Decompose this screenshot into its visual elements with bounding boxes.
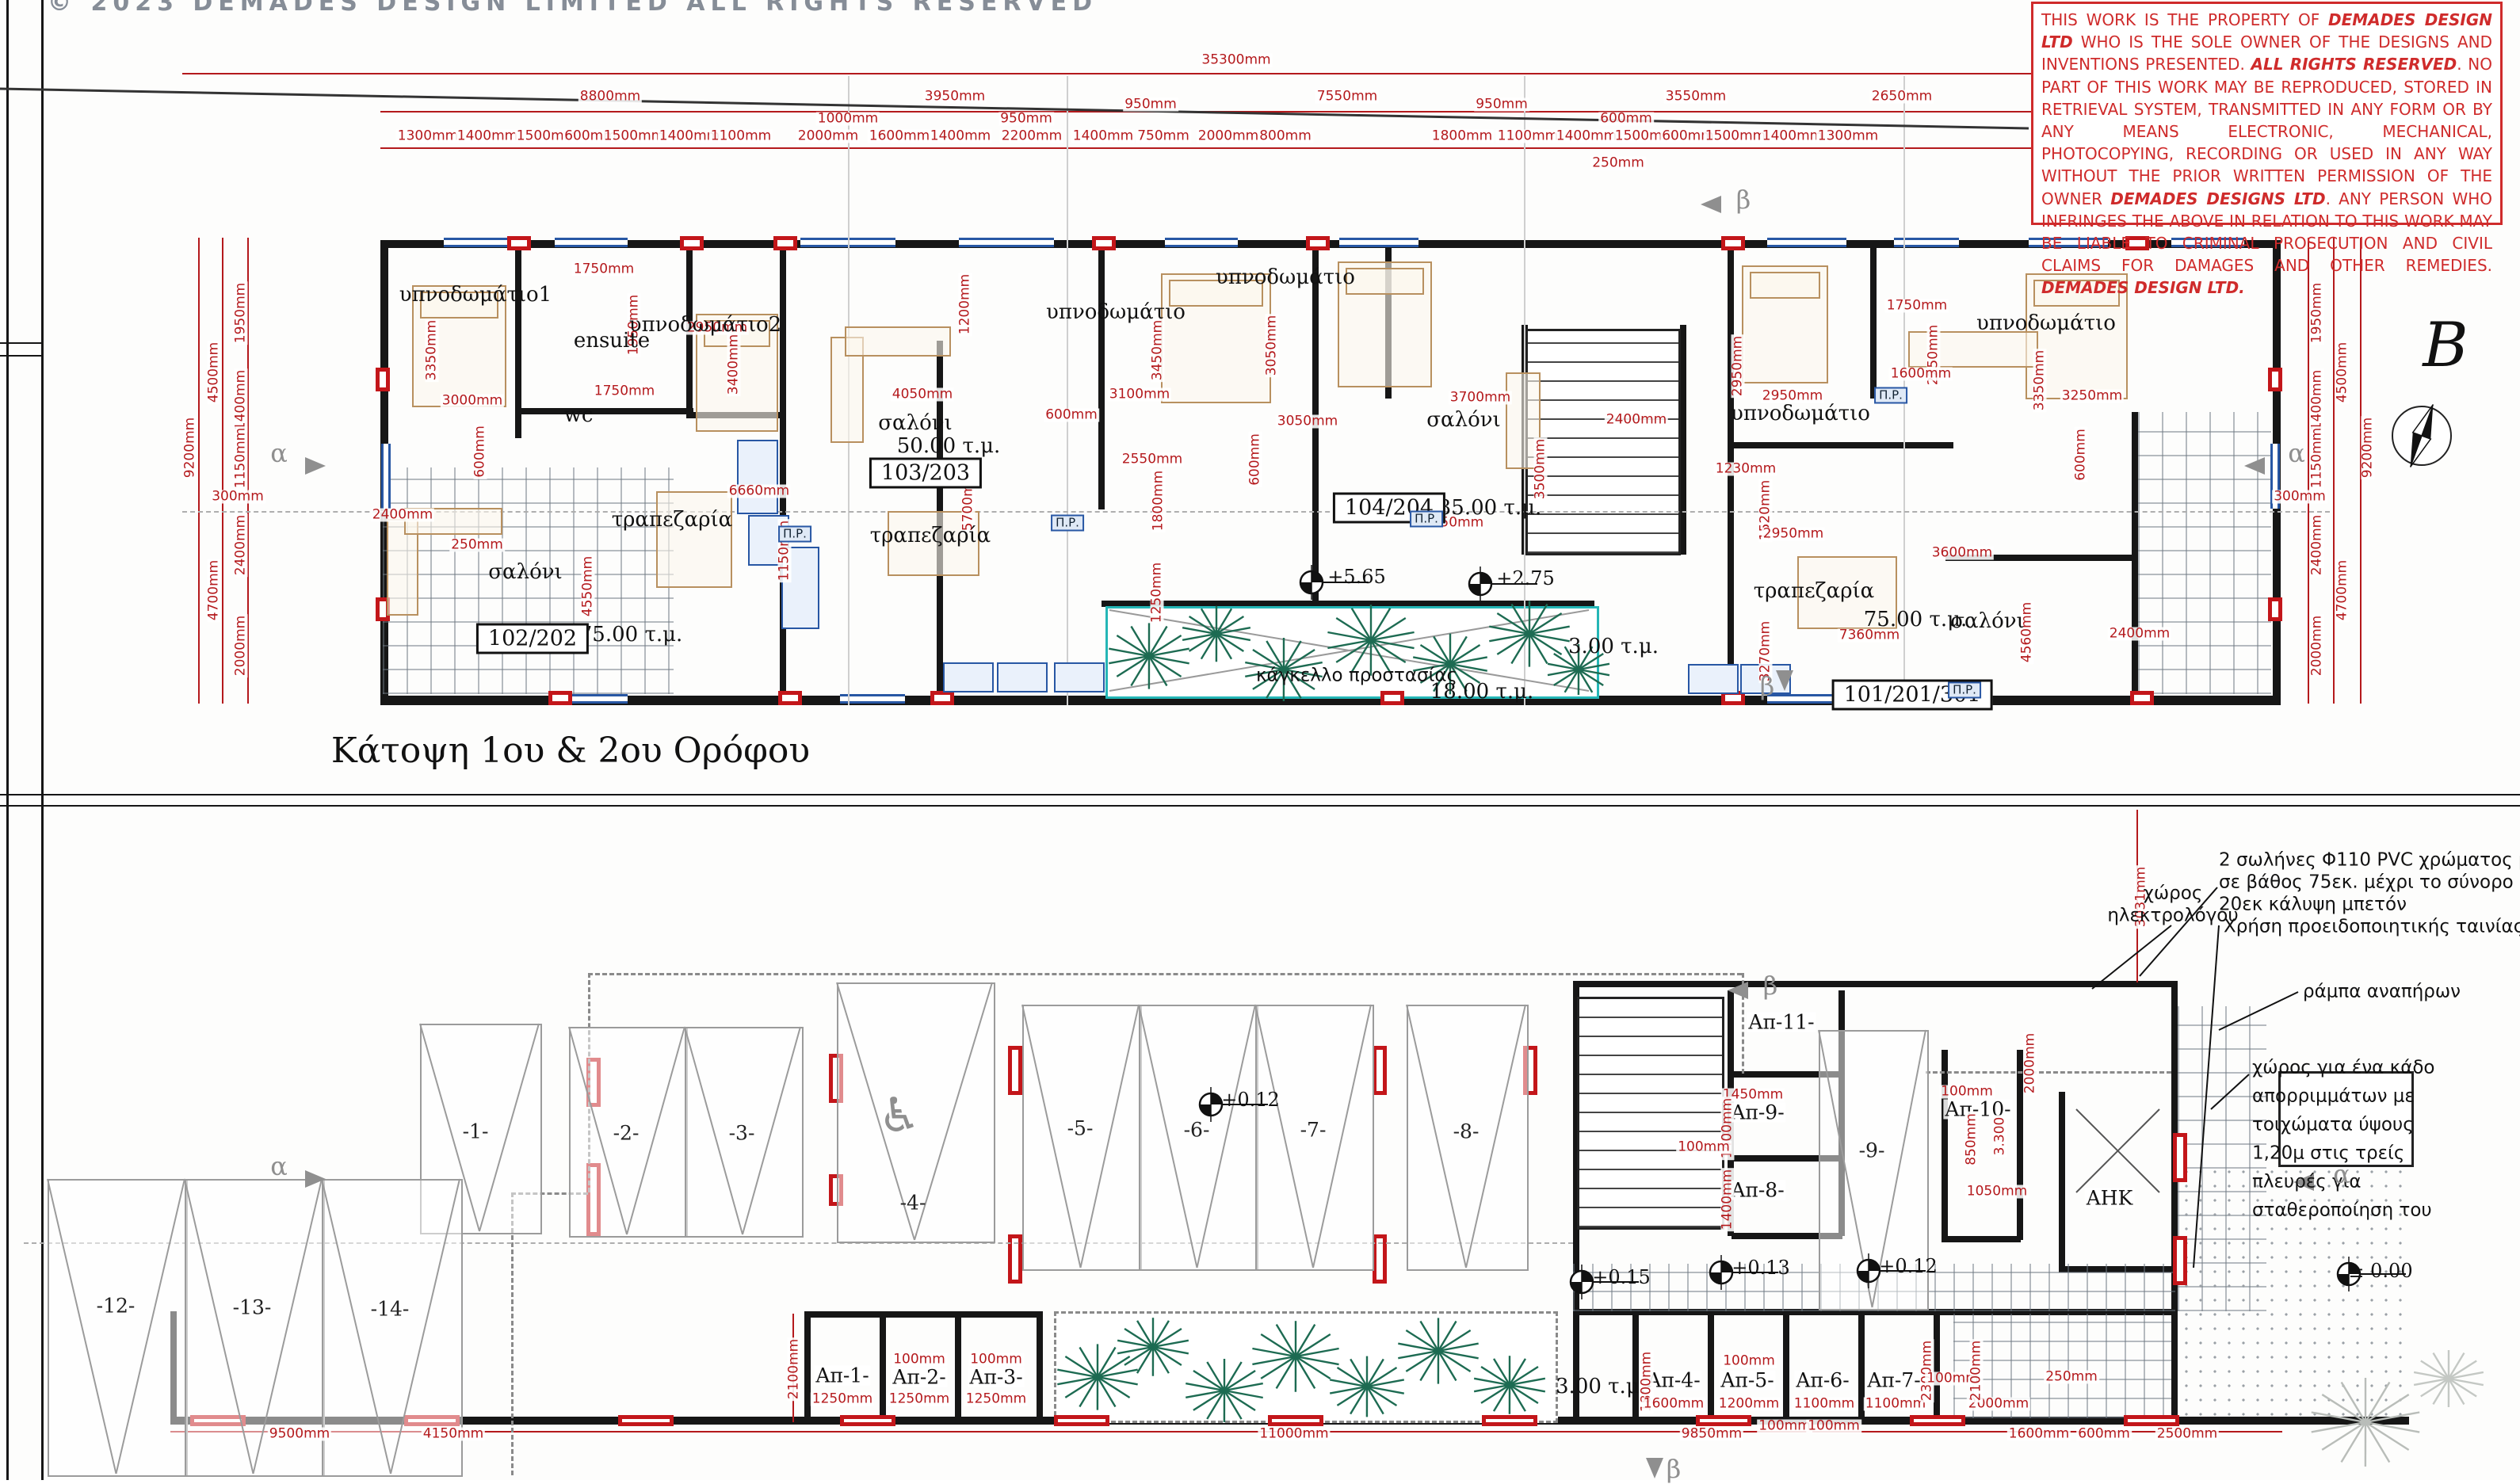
drawing-sheet: © 2023 DEMADES DESIGN LIMITED ALL RIGHTS… — [0, 0, 2520, 1480]
section-marker-letter: β — [1736, 187, 1751, 212]
parking-number: -5- — [1067, 1119, 1094, 1139]
dimension-label: 300mm — [2272, 490, 2327, 504]
legal-text-segment: . NO PART OF THIS WORK MAY BE REPRODUCED… — [2041, 55, 2492, 208]
dimension-label: 2550mm — [1121, 453, 1184, 467]
dimension-label: 600mm — [2075, 427, 2088, 483]
section-marker-letter: β — [1763, 973, 1778, 998]
parking-number: -6- — [1184, 1120, 1210, 1140]
dimension-label: 4500mm — [208, 341, 221, 404]
dimension-label: 3500mm — [1534, 437, 1548, 501]
annotation-note: τοιχώματα ύψους — [2252, 1116, 2414, 1135]
leader-line — [2219, 992, 2298, 1030]
unit-number-badge: 102/202 — [476, 624, 589, 654]
dimension-label: 600mm — [1598, 113, 1654, 126]
pantry-label: Π.Ρ. — [778, 526, 811, 543]
dimension-label: 600mm — [474, 424, 487, 479]
annotation-note: χώρος για ένα κάδο — [2252, 1059, 2435, 1078]
parking-number: -8- — [1453, 1122, 1480, 1142]
dimension-label: 1750mm — [593, 385, 656, 399]
room-label: υπνοδωμάτιο — [1976, 313, 2116, 334]
section-marker-arrow — [305, 457, 326, 475]
dimension-label: 1400mm — [235, 368, 248, 432]
room-label: σαλόνι — [488, 562, 562, 582]
dimension-label: 2100mm — [788, 1337, 801, 1401]
dimension-label: 1050mm — [1965, 1185, 2029, 1199]
parking-number: -2- — [613, 1123, 640, 1143]
palm-plant-icon — [1117, 1318, 1189, 1376]
dimension-label: 1400mm — [2311, 368, 2324, 432]
parking-number: -4- — [900, 1193, 926, 1213]
dimension-label: 1950mm — [235, 281, 248, 345]
legal-text-segment: ALL RIGHTS RESERVED — [2251, 55, 2457, 74]
dimension-label: 4150mm — [422, 1428, 485, 1441]
annotation-note: κάγκελλο προστασίας — [1256, 667, 1457, 685]
dimension-label: 950mm — [1123, 98, 1178, 112]
level-value: +5.65 — [1327, 567, 1386, 586]
dimension-label: 250mm — [449, 539, 505, 552]
dimension-label: 1100mm — [709, 130, 773, 143]
dimension-label: 1800mm — [1152, 469, 1166, 532]
dimension-label: 1750mm — [1885, 299, 1949, 313]
storage-label: Απ-11- — [1747, 1013, 1816, 1032]
annotation-note: 1,20μ στις τρείς — [2252, 1145, 2404, 1163]
legal-notice: THIS WORK IS THE PROPERTY OF DEMADES DES… — [2031, 2, 2503, 225]
dimension-label: 750mm — [1136, 130, 1191, 143]
dimension-label: 7550mm — [1315, 90, 1379, 104]
room-label: υπνοδωμάτιο — [1731, 403, 1870, 424]
dimension-label: 35300mm — [1200, 54, 1272, 67]
dimension-label: 850mm — [1965, 1112, 1979, 1167]
room-label: υπνοδωμάτιο — [1046, 302, 1186, 322]
dimension-label: 1250mm — [888, 1393, 951, 1406]
area-label: 35.00 τ.μ. — [1438, 498, 1542, 518]
annotation-note: σταθεροποίηση του — [2252, 1202, 2432, 1220]
dimension-label: 1400mm — [456, 130, 519, 143]
dimension-label: 2400mm — [235, 513, 248, 577]
level-value: +2.75 — [1496, 569, 1555, 588]
dimension-label: 600mm — [1249, 432, 1262, 487]
room-label: τραπεζαρία — [870, 525, 991, 546]
parking-number: -1- — [463, 1122, 489, 1142]
dimension-label: 1250mm — [1151, 561, 1164, 624]
annotation-note: Χρήση προειδοποιητικής ταινίας — [2224, 918, 2520, 937]
dimension-label: 4700mm — [2336, 559, 2350, 622]
room-label: τραπεζαρία — [1754, 581, 1874, 601]
area-label: 3.00 τ.μ. — [1568, 636, 1659, 657]
section-marker-letter: α — [2288, 441, 2305, 466]
dimension-label: 1600mm — [868, 130, 931, 143]
parking-number: -14- — [371, 1299, 410, 1319]
dimension-label: 3050mm — [1266, 314, 1279, 377]
legal-text-segment: THIS WORK IS THE PROPERTY OF — [2041, 10, 2328, 29]
dimension-label: 3400mm — [727, 333, 741, 396]
annotation-note: 2 σωλήνες Φ110 PVC χρώματος μπλέ — [2219, 852, 2520, 870]
storage-label: Απ-8- — [1729, 1181, 1785, 1200]
dimension-label: 2650mm — [1870, 90, 1934, 104]
palm-plant-icon — [1182, 606, 1250, 662]
dimension-label: 1250mm — [964, 1393, 1028, 1406]
dimension-label: 9850mm — [1680, 1428, 1743, 1441]
dimension-label: 1230mm — [1714, 463, 1777, 476]
dimension-label: 1500mm — [1704, 130, 1767, 143]
pantry-label: Π.Ρ. — [1051, 515, 1084, 532]
level-value: +0.12 — [1221, 1090, 1280, 1109]
dimension-label: 100mm — [1757, 1420, 1812, 1433]
annotation-note: απορριμμάτων με — [2252, 1088, 2415, 1106]
dimension-label: 2400mm — [371, 509, 434, 522]
dimension-label: 2400mm — [2311, 513, 2324, 577]
dimension-label: 1950mm — [2311, 281, 2324, 345]
dimension-label: 2400mm — [1605, 414, 1668, 427]
parking-number: -9- — [1859, 1141, 1885, 1161]
palm-plant-icon — [1186, 1359, 1262, 1422]
area-label: 50.00 τ.μ. — [897, 436, 1001, 456]
area-label: 75.00 τ.μ. — [1864, 609, 1968, 630]
storage-label: Απ-1- — [814, 1366, 870, 1386]
dimension-label: 4500mm — [2336, 341, 2350, 404]
dimension-label: 2950mm — [1762, 528, 1825, 541]
dimension-label: 1400mm — [1071, 130, 1135, 143]
dimension-label: 3050mm — [1276, 415, 1339, 429]
stall-chevron — [116, 1179, 185, 1474]
dimension-label: 1600mm — [2007, 1428, 2071, 1441]
parking-number: -7- — [1300, 1120, 1327, 1140]
pantry-label: Π.Ρ. — [1874, 387, 1907, 404]
dimension-label: 2100mm — [1970, 1339, 1984, 1402]
dimension-label: 300mm — [210, 490, 265, 504]
stall-chevron — [185, 1179, 254, 1474]
dimension-label: 9200mm — [184, 416, 197, 479]
dimension-label: 950mm — [998, 113, 1054, 126]
leader-line — [2211, 1074, 2249, 1109]
dimension-label: 100mm — [1676, 1141, 1732, 1154]
annotation-note: χώρος — [2144, 885, 2203, 903]
dimension-label: 3350mm — [426, 319, 439, 382]
dimension-label: 100mm — [968, 1353, 1024, 1367]
storage-label: Απ-6- — [1794, 1371, 1850, 1391]
legal-text-segment: DEMADES DESIGNS LTD — [2110, 189, 2325, 208]
dimension-label: 3450mm — [1151, 319, 1165, 382]
dimension-label: 1400mm — [1761, 130, 1824, 143]
leader-line — [2194, 925, 2219, 1268]
dimension-label: 6660mm — [727, 485, 791, 498]
section-marker-letter: α — [270, 441, 288, 466]
dimension-label: 3700mm — [1449, 391, 1512, 405]
dimension-label: 2000mm — [796, 130, 860, 143]
room-label: σαλόνι — [1426, 410, 1500, 430]
parking-number: -12- — [97, 1296, 136, 1316]
dimension-label: 1200mm — [959, 273, 972, 336]
dimension-label: 2000mm — [2311, 614, 2324, 677]
level-value: +0.12 — [1879, 1257, 1938, 1276]
pantry-label: Π.Ρ. — [1948, 682, 1981, 699]
storage-label: Απ-5- — [1719, 1371, 1775, 1391]
level-value: +0.15 — [1592, 1268, 1651, 1287]
dimension-label: 250mm — [2044, 1371, 2099, 1384]
section-marker-arrow — [2244, 457, 2265, 475]
dimension-label: 1750mm — [572, 263, 636, 277]
dimension-label: 1100mm — [1496, 130, 1560, 143]
dimension-label: 1600mm — [1642, 1398, 1705, 1411]
palm-plant-icon — [1398, 1318, 1478, 1383]
parking-number: -3- — [729, 1123, 755, 1143]
storage-label: Απ-2- — [891, 1368, 947, 1387]
dimension-label: 3950mm — [923, 90, 987, 104]
dimension-label: 11000mm — [1258, 1428, 1330, 1441]
palm-plant-icon — [1252, 1321, 1338, 1392]
dimension-label: 1100mm — [1793, 1398, 1856, 1411]
annotation-note: ράμπα αναπήρων — [2303, 983, 2461, 1001]
room-label: υπνοδωμάτιο2 — [629, 315, 781, 335]
dimension-label: 3550mm — [1664, 90, 1728, 104]
room-label: τραπεζαρία — [612, 509, 732, 530]
area-label: 75.00 τ.μ. — [579, 624, 683, 645]
dimension-label: 100mm — [1806, 1420, 1861, 1433]
room-label: υπνοδωμάτιο1 — [399, 284, 552, 305]
dimension-label: 4700mm — [208, 559, 221, 622]
annotation-note: σε βάθος 75εκ. μέχρι το σύνορο του τεμαχ… — [2219, 874, 2520, 892]
dimension-label: 3000mm — [441, 395, 504, 408]
dimension-label: 600mm — [1044, 409, 1099, 422]
room-label: σαλόνι — [878, 413, 952, 433]
dimension-label: 9500mm — [268, 1428, 331, 1441]
level-value: ± 0.00 — [2348, 1261, 2412, 1280]
dimension-label: 1250mm — [811, 1393, 874, 1406]
dimension-label: 2950mm — [1761, 390, 1824, 403]
area-label: 3.00 τ.μ. — [1556, 1376, 1646, 1397]
dimension-label: 2500mm — [2155, 1428, 2219, 1441]
wheelchair-icon: ♿ — [878, 1088, 921, 1143]
dimension-label: 1300mm — [396, 130, 460, 143]
dimension-label: 2000mm — [235, 614, 248, 677]
dimension-label: 1100mm — [1864, 1398, 1927, 1411]
dimension-label: 3350mm — [2033, 349, 2047, 412]
dimension-label: 800mm — [1258, 130, 1313, 143]
dimension-label: 1000mm — [816, 113, 880, 126]
dimension-label: 1400mm — [929, 130, 992, 143]
leader-line — [2092, 925, 2171, 989]
dimension-label: 600mm — [2076, 1428, 2132, 1441]
dimension-label: 1600mm — [1889, 368, 1953, 381]
dimension-label: 1300mm — [1816, 130, 1880, 143]
dimension-label: 2950mm — [1732, 334, 1745, 398]
storage-label: Απ-7- — [1865, 1371, 1922, 1391]
annotation-note: 20εκ κάλυψη μπετόν — [2219, 896, 2407, 914]
dimension-label: 1400mm — [1555, 130, 1618, 143]
section-marker-arrow — [1776, 670, 1793, 691]
room-label: wc — [564, 405, 594, 425]
palm-plant-icon — [2312, 1378, 2419, 1467]
dimension-label: 100mm — [1721, 1355, 1777, 1368]
dimension-label: 1150mm — [235, 426, 248, 490]
palm-plant-icon — [1330, 1356, 1404, 1417]
section-marker-letter: α — [2333, 1162, 2350, 1187]
dimension-label: 2200mm — [1000, 130, 1063, 143]
stall-chevron — [914, 982, 992, 1240]
storage-label: Απ-9- — [1729, 1103, 1785, 1123]
parking-number: -13- — [233, 1298, 272, 1318]
dimension-label: 100mm — [1939, 1085, 1995, 1099]
stall-chevron — [322, 1179, 391, 1474]
section-marker-letter: β — [1667, 1456, 1682, 1482]
dimension-label: 4050mm — [891, 388, 954, 402]
dimension-label: 2000mm — [2024, 1032, 2037, 1095]
dimension-label: 9200mm — [2362, 416, 2375, 479]
palm-plant-icon — [1474, 1356, 1545, 1414]
dimension-label: 3100mm — [1108, 388, 1171, 402]
palm-plant-icon — [2414, 1350, 2484, 1407]
level-value: +0.13 — [1732, 1258, 1790, 1277]
stall-chevron — [48, 1179, 116, 1474]
dimension-label: 2000mm — [1197, 130, 1260, 143]
dimension-label: 3250mm — [2060, 390, 2124, 403]
section-marker-arrow — [1701, 196, 1721, 213]
section-marker-letter: β — [1760, 673, 1775, 699]
section-marker-arrow — [1646, 1458, 1663, 1478]
dimension-label: 3.300 — [1994, 1116, 2007, 1158]
palm-plant-icon — [1057, 1344, 1137, 1410]
pantry-label: Π.Ρ. — [1410, 511, 1443, 528]
section-marker-letter: α — [270, 1154, 288, 1179]
dimension-label: 2400mm — [2108, 628, 2171, 641]
dimension-label: 1150mm — [2311, 426, 2324, 490]
storage-label: Απ-3- — [968, 1368, 1024, 1387]
section-marker-arrow — [1728, 982, 1748, 999]
dimension-label: 1400mm — [1721, 1168, 1735, 1231]
annotation-note: ηλεκτρολόγου — [2107, 907, 2238, 925]
storage-label: AHK — [2085, 1188, 2135, 1208]
legal-text-segment: DEMADES DESIGN LTD. — [2041, 278, 2245, 297]
unit-number-badge: 103/203 — [869, 458, 982, 489]
dimension-label: 100mm — [892, 1353, 947, 1367]
dimension-label: 4550mm — [582, 555, 595, 618]
dimension-label: 950mm — [1474, 98, 1529, 112]
dimension-label: 1800mm — [1430, 130, 1494, 143]
dimension-label: 250mm — [1590, 157, 1646, 170]
room-label: υπνοδωμάτιο — [1216, 267, 1355, 288]
dimension-label: 1200mm — [1717, 1398, 1781, 1411]
dimension-label: 1500mm — [602, 130, 666, 143]
dimension-label: 8800mm — [578, 90, 642, 104]
dimension-label: 3600mm — [1930, 547, 1994, 560]
